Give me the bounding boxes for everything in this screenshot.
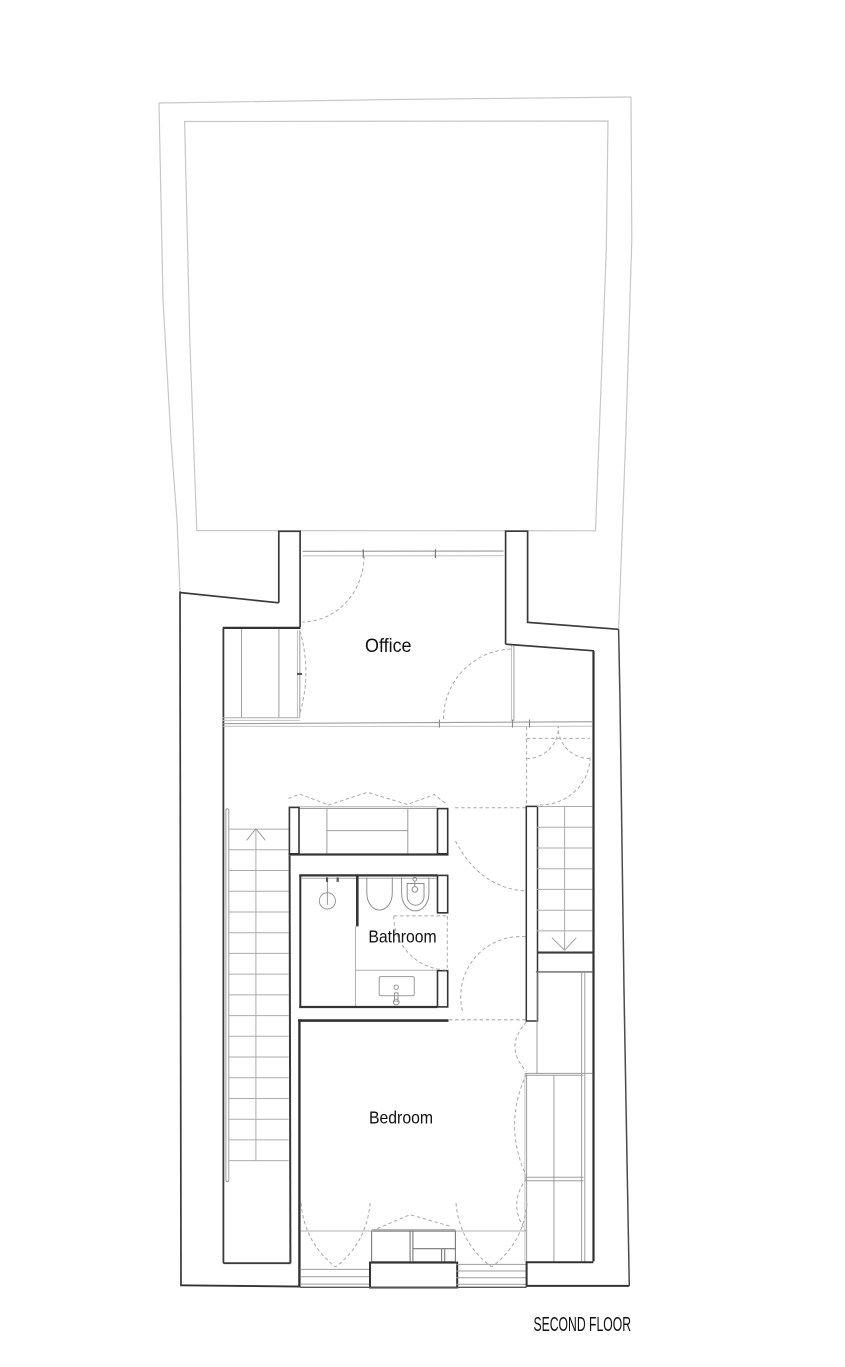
svg-text:SECOND FLOOR: SECOND FLOOR bbox=[534, 1313, 632, 1336]
svg-text:Bathroom: Bathroom bbox=[368, 927, 436, 947]
svg-text:Office: Office bbox=[365, 635, 412, 657]
svg-text:Bedroom: Bedroom bbox=[369, 1108, 433, 1128]
